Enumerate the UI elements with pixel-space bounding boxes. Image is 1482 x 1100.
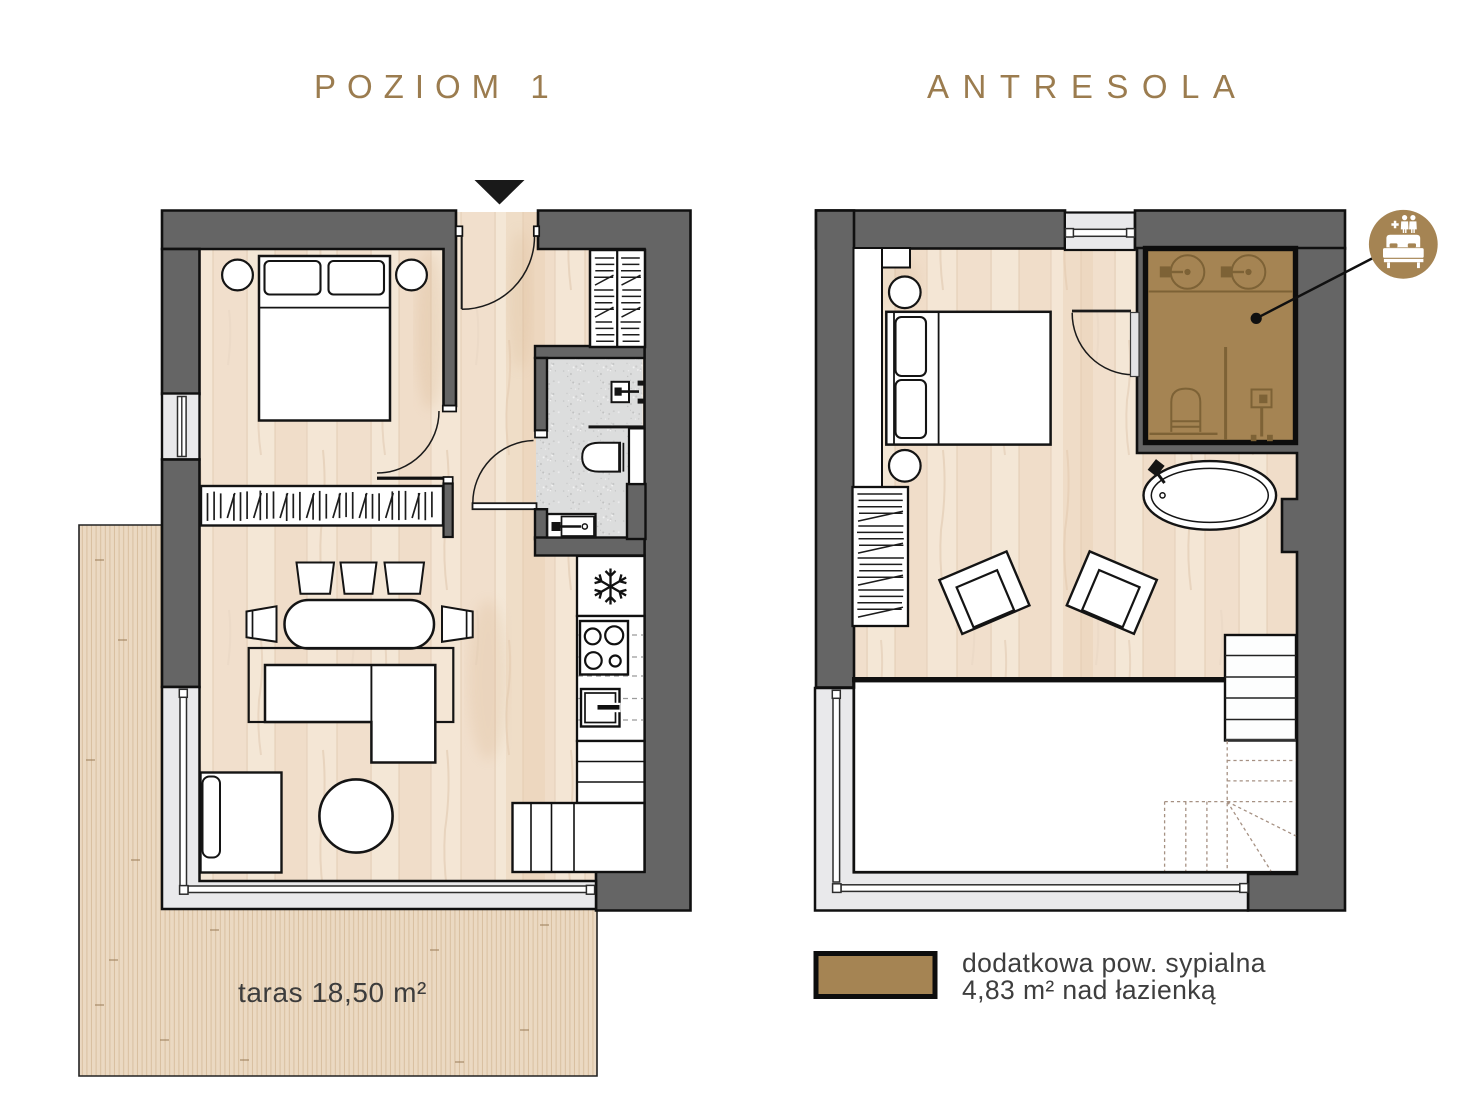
svg-text:4,83 m² nad łazienką: 4,83 m² nad łazienką — [962, 975, 1216, 1005]
svg-text:ANTRESOLA: ANTRESOLA — [927, 68, 1248, 105]
svg-text:dodatkowa pow. sypialna: dodatkowa pow. sypialna — [962, 948, 1266, 978]
svg-text:taras 18,50 m²: taras 18,50 m² — [238, 977, 427, 1008]
svg-text:POZIOM 1: POZIOM 1 — [314, 68, 560, 105]
